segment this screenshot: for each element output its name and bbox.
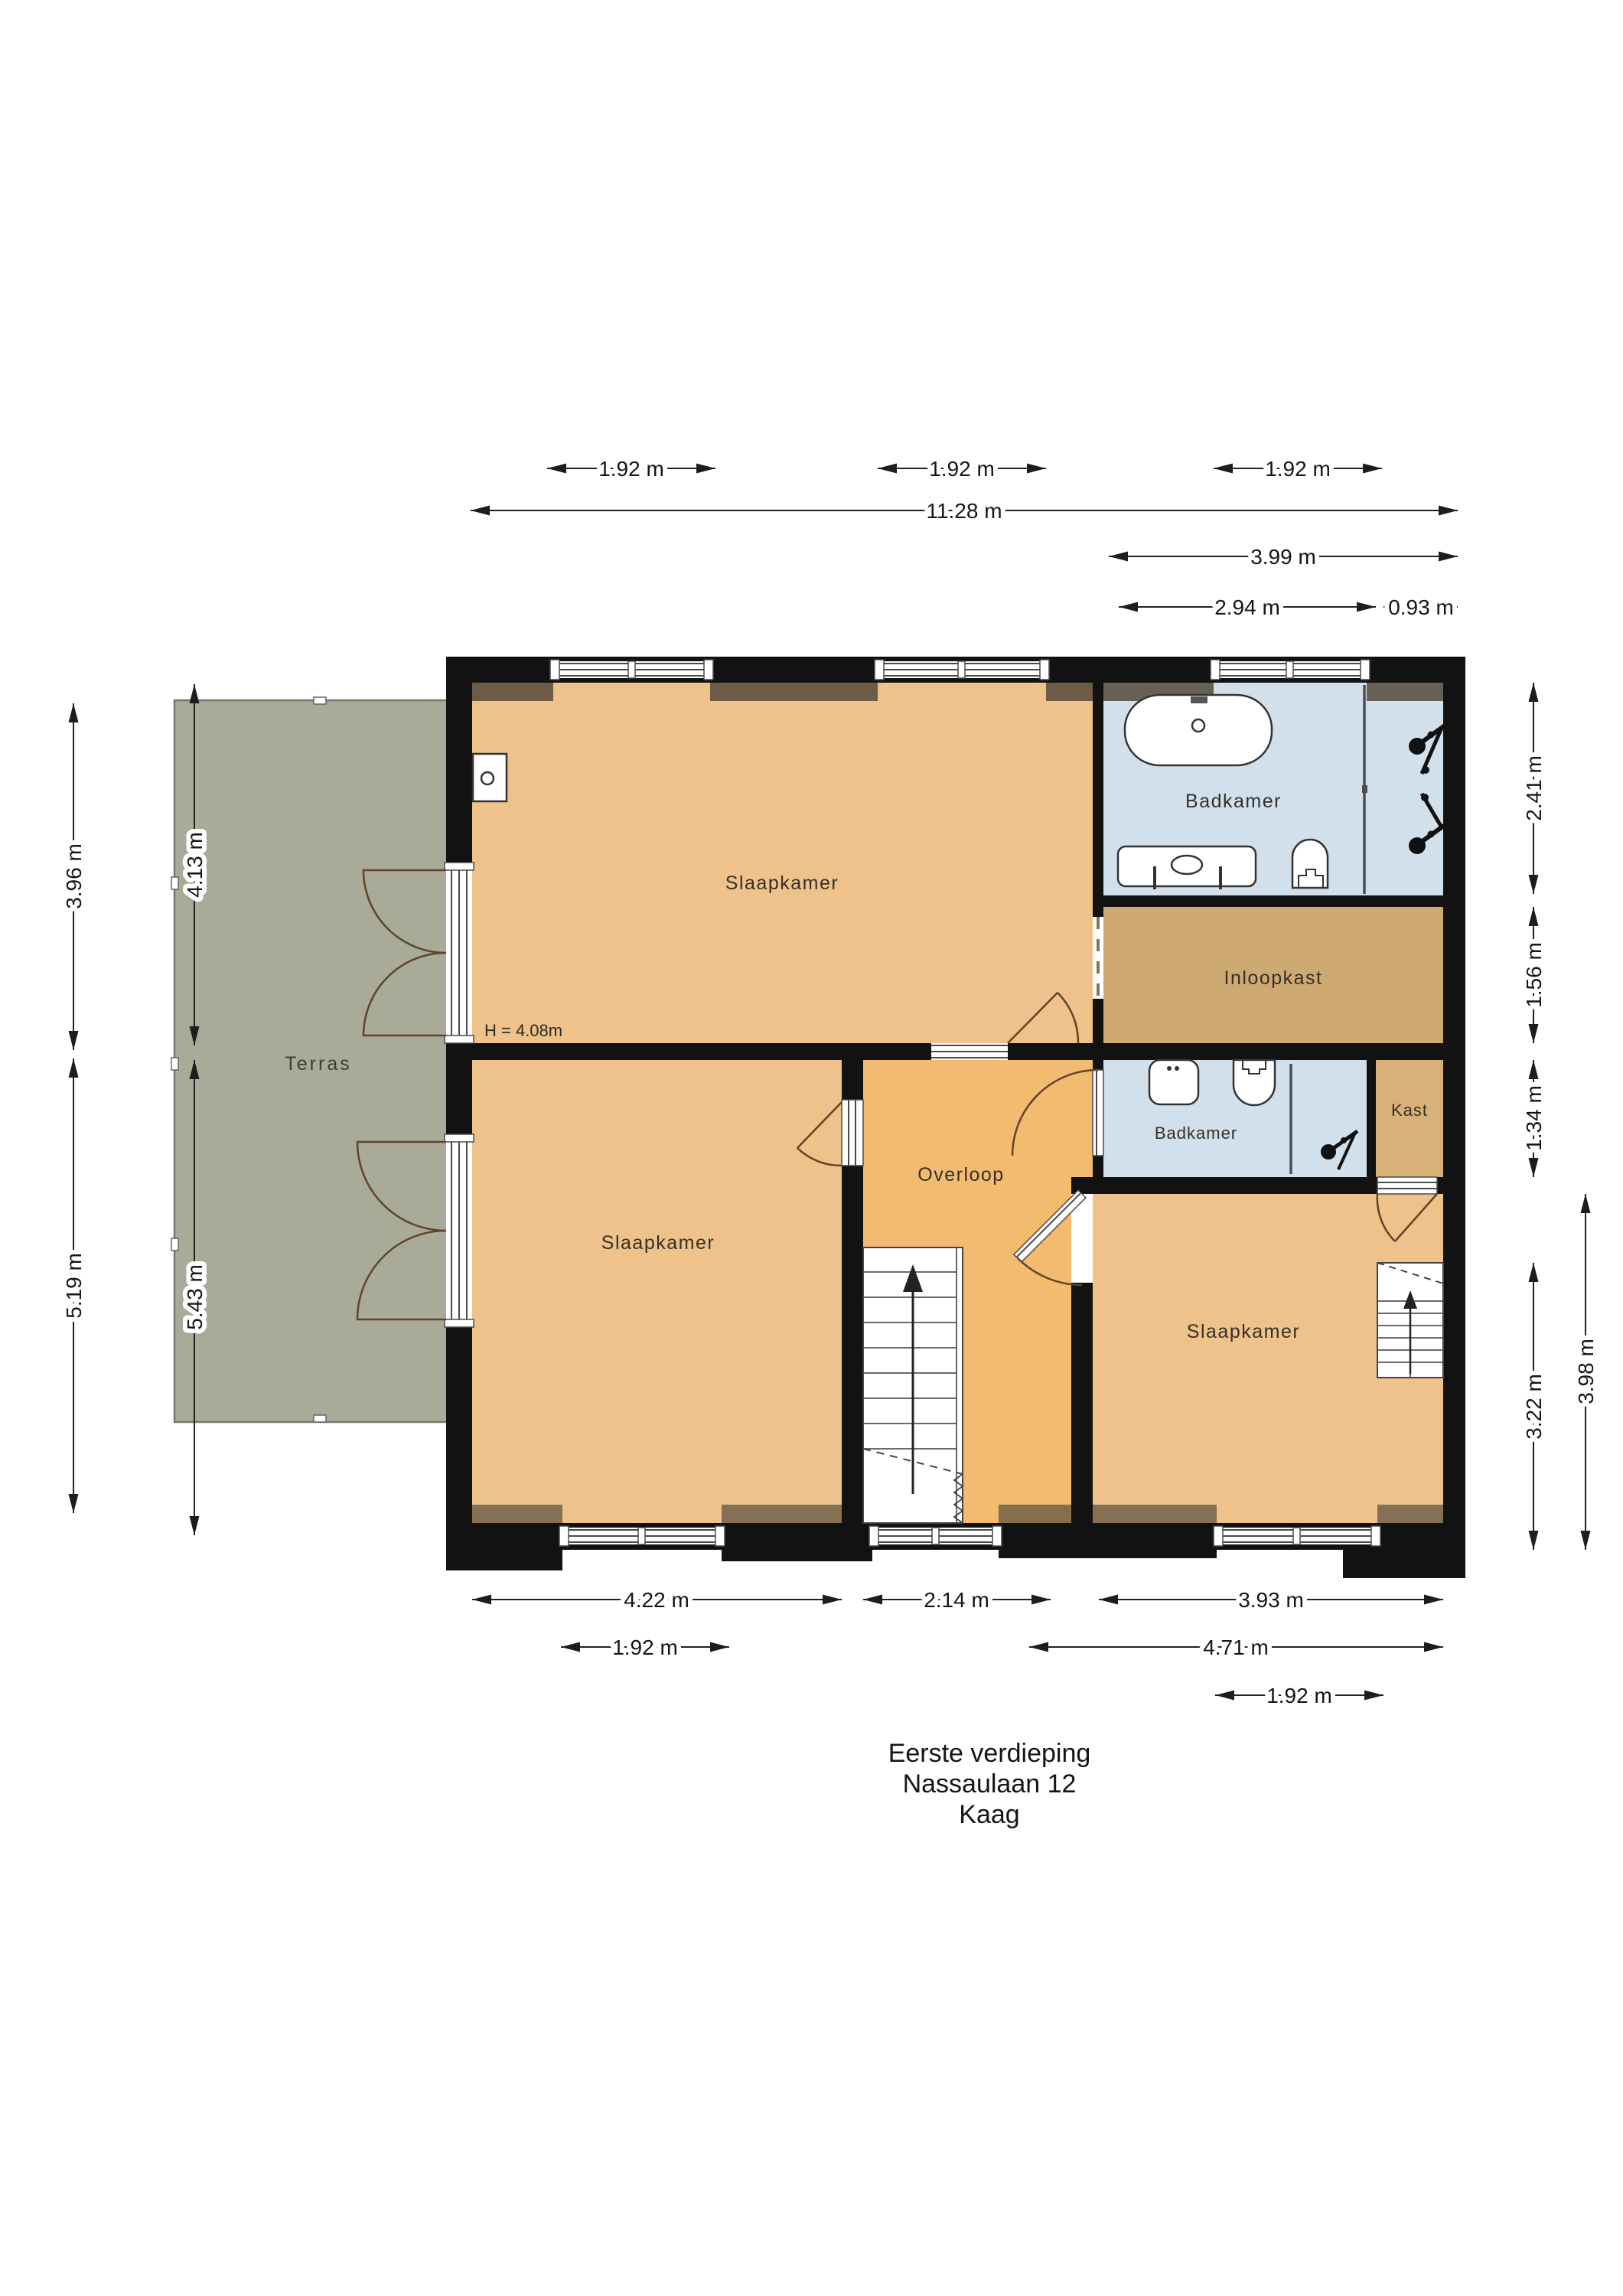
dim-label: 4.22 m — [624, 1588, 689, 1612]
room-label-badkamer-small: Badkamer — [1155, 1124, 1237, 1143]
wall-overloop-left-lower — [842, 1166, 863, 1523]
wall-inloopkast-bottom — [1093, 1043, 1443, 1060]
windows-bottom — [559, 1526, 1380, 1546]
ceiling-height-note: H = 4.08m — [484, 1021, 562, 1040]
wall-right — [1443, 657, 1465, 1550]
room-label-overloop: Overloop — [917, 1164, 1004, 1186]
doorway-inloopkast — [1093, 917, 1103, 999]
bedroom-fixture — [473, 754, 507, 801]
room-label-badkamer-main: Badkamer — [1185, 791, 1282, 812]
plan-title-city: Kaag — [959, 1800, 1019, 1829]
room-label-slaapkamer-left: Slaapkamer — [601, 1232, 715, 1254]
dim-label: 2.14 m — [924, 1588, 989, 1612]
window — [1211, 660, 1370, 680]
wall-bedroom-bottom — [472, 1043, 1103, 1060]
dim-label: 3.98 m — [1574, 1339, 1598, 1404]
dim-label: 2.94 m — [1214, 595, 1280, 619]
plan-title-address: Nassaulaan 12 — [903, 1769, 1077, 1799]
dim-label: 4.13 m — [183, 832, 207, 898]
dim-label: 0.93 m — [1388, 595, 1454, 619]
wall-badkamer-inloopkast — [1103, 895, 1443, 907]
dim-label: 5.19 m — [62, 1253, 86, 1319]
window — [550, 660, 713, 680]
dim-label: 3.22 m — [1522, 1374, 1546, 1440]
dim-label: 11.28 m — [926, 499, 1002, 523]
room-label-inloopkast: Inloopkast — [1224, 967, 1323, 989]
wall-badkamer2-left-stub-top — [1093, 1060, 1103, 1070]
dim-label: 3.96 m — [62, 843, 86, 909]
divider-joint-icon — [1362, 785, 1367, 793]
dim-label: 4.71 m — [1203, 1636, 1269, 1659]
terrace-label: Terras — [285, 1053, 351, 1075]
dim-label: 1.92 m — [1266, 1684, 1332, 1707]
room-slaapkamer-top-floor — [472, 683, 1093, 1043]
floorplan-page: Terras — [0, 0, 1623, 2296]
staircase-secondary — [1377, 1263, 1443, 1378]
wall-overloop-left-upper — [842, 1060, 863, 1100]
room-label-slaapkamer-top: Slaapkamer — [725, 872, 839, 894]
dimensions-right: 2.41 m 1.56 m 1.34 m 3.22 m 3.98 m — [1522, 683, 1598, 1550]
bathtub-tap-icon — [1191, 696, 1207, 703]
dim-label: 1.92 m — [612, 1636, 678, 1659]
room-label-kast: Kast — [1391, 1101, 1428, 1120]
terrace: Terras — [171, 697, 463, 1422]
room-label-slaapkamer-right: Slaapkamer — [1187, 1321, 1300, 1342]
title-block: Eerste verdieping Nassaulaan 12 Kaag — [888, 1739, 1091, 1829]
staircase-main — [863, 1247, 963, 1523]
wall-left — [446, 657, 472, 1523]
window — [875, 660, 1049, 680]
floorplan-drawing: Terras — [0, 0, 1623, 2296]
sink-symbol — [1149, 1060, 1198, 1104]
wall-overloop-right — [1071, 1283, 1093, 1523]
toilet-symbol — [1234, 1060, 1275, 1105]
windows-top — [550, 660, 1370, 680]
faucet-icon — [1175, 1066, 1179, 1071]
plan-title-floor: Eerste verdieping — [888, 1739, 1091, 1768]
sink-basin-icon — [1172, 856, 1202, 874]
dimensions-bottom: 4.22 m 2.14 m 3.93 m 1.92 m 4.71 m 1.92 … — [472, 1588, 1443, 1707]
window — [869, 1526, 1002, 1546]
dimensions-top: 1.92 m 1.92 m 1.92 m 11.28 m 3.99 m 2.94… — [471, 457, 1458, 619]
dim-label: 2.41 m — [1522, 755, 1546, 821]
dim-label: 1.92 m — [1265, 457, 1331, 481]
dim-label: 3.93 m — [1238, 1588, 1304, 1612]
faucet-icon — [1167, 1066, 1172, 1071]
column-unit-symbol — [473, 754, 507, 801]
window — [1214, 1526, 1380, 1546]
wall-badkamer2-left-stub-bottom — [1093, 1156, 1103, 1177]
dim-label: 1.34 m — [1522, 1085, 1546, 1151]
bathtub-drain-icon — [1192, 719, 1204, 732]
dim-label: 1.56 m — [1522, 942, 1546, 1008]
dim-label: 3.99 m — [1250, 545, 1316, 569]
room-slaapkamer-left-floor — [472, 1060, 842, 1523]
dim-label: 1.92 m — [929, 457, 995, 481]
wall-badkamer2-kast — [1367, 1060, 1376, 1177]
window — [559, 1526, 725, 1546]
dim-label: 1.92 m — [598, 457, 664, 481]
dim-label: 5.43 m — [183, 1264, 207, 1330]
